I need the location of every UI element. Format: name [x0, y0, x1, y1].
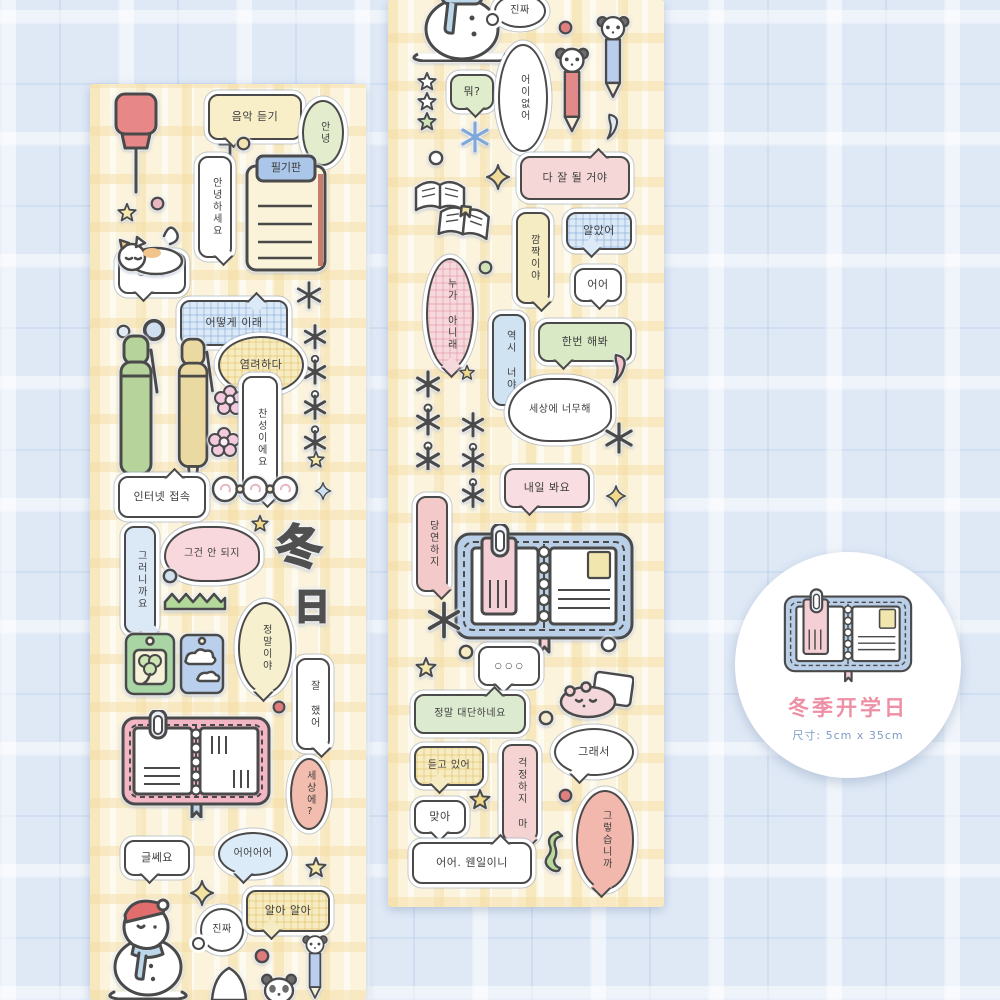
- comma-pink-icon: [610, 348, 630, 390]
- cat-icon: [116, 220, 186, 276]
- bubble-got-it: 알았어: [566, 212, 632, 250]
- bubble-hello: 안녕하세요: [198, 156, 232, 258]
- dot-blue-2: [162, 568, 178, 584]
- bubble-amazing: 정말 대단하네요: [414, 694, 526, 734]
- sparkle-blue-icon: [314, 482, 332, 500]
- snowman-icon: [96, 892, 200, 1000]
- dot-red-2: [254, 948, 270, 964]
- hanzi-day: 日: [290, 590, 334, 642]
- hamster-icon: [558, 668, 634, 720]
- bubble-dont-worry: 걱정하지 마: [502, 744, 538, 842]
- star-icon-7: [468, 788, 492, 812]
- asterisk-icon-1: [294, 280, 324, 310]
- dot-red-1: [272, 700, 286, 714]
- bubble-all-good: 다 잘 될 거야: [520, 156, 630, 200]
- star-icon-6: [414, 656, 438, 680]
- bubble-omg: 세상에?: [290, 758, 328, 830]
- thought-really: 진짜: [200, 908, 244, 952]
- bubble-listening: 듣고 있어: [414, 746, 484, 786]
- tag-clover-icon: [122, 630, 178, 698]
- bubble-i-know: 알아 알아: [246, 890, 330, 932]
- bubble-well-done: 잘 했어: [296, 658, 330, 750]
- dot-yellow: [236, 136, 251, 151]
- dot-red-4: [558, 788, 573, 803]
- dot-ring-2: [600, 636, 617, 653]
- panda-pencil-red-icon: [552, 46, 592, 134]
- dot-pink: [150, 196, 165, 211]
- bubble-ellipsis-2: ○ ○ ○: [478, 646, 540, 686]
- clipboard-label: 필기판: [242, 159, 330, 175]
- star-chain-icon: [414, 72, 440, 136]
- asterisk-icon-3: [424, 600, 464, 640]
- badge-size-label: 尺寸: 5cm x 35cm: [792, 727, 903, 743]
- bubble-internet: 인터넷 접속: [118, 476, 206, 518]
- dot-ring-1: [428, 150, 444, 166]
- bubble-no-way: 그건 안 되지: [164, 526, 260, 582]
- bubble-and-so: 그래서: [554, 728, 634, 776]
- planner-pink-icon: [120, 710, 272, 818]
- star-icon-3: [250, 514, 270, 534]
- dot-cream-1: [458, 644, 474, 660]
- bubble-who-says: 누가 아니래: [426, 258, 474, 370]
- badge-title: 冬季开学日: [788, 692, 908, 722]
- bubble-of-course: 당연하지: [416, 496, 448, 592]
- pushpin-red-icon: [106, 90, 166, 210]
- bubble-really: 정말이야: [238, 602, 292, 694]
- sticker-sheet-right: 진짜뭐?어이없어다 잘 될 거야깜짝이야알았어어어누가 아니래역시 너야한번 해…: [388, 0, 664, 907]
- product-badge: 冬季开学日 尺寸: 5cm x 35cm: [735, 552, 961, 778]
- bubble-what: 뭐?: [450, 74, 494, 110]
- flower-icon-2: [208, 426, 240, 458]
- sparkle-yellow-icon-2: [606, 484, 626, 508]
- star-icon-4: [304, 856, 328, 880]
- comma-blue-icon: [604, 112, 622, 142]
- beads-icon: [210, 474, 300, 504]
- star-icon-5: [458, 364, 476, 382]
- bubble-is-that-so: 그렇습니까: [576, 790, 634, 890]
- hanzi-winter: 冬: [268, 524, 330, 586]
- tag-cloud-icon: [178, 632, 226, 696]
- asterisk-blue-icon: [458, 120, 492, 154]
- panda-pencil-blue-icon-left: [296, 934, 334, 1000]
- bubble-too-much: 세상에 너무해: [508, 378, 612, 442]
- panda-face-icon: [258, 972, 300, 1000]
- dot-red-3: [558, 20, 573, 35]
- sticker-sheet-left: 음악 듣기안녕○ ○ ○안녕하세요필기판어떻게 이래염려하다찬성이에요인터넷 접…: [90, 84, 366, 1000]
- asterisk-chain-icon-3: [460, 408, 486, 514]
- bubble-right: 맞아: [414, 800, 466, 834]
- dot-cream-2: [538, 710, 554, 726]
- books-icon: [412, 176, 500, 242]
- bubble-uhh: 어어어어: [218, 832, 288, 876]
- bubble-speechless: 어이없어: [498, 44, 548, 152]
- planner-illustration: [782, 588, 914, 684]
- bubble-uh: 어어: [574, 268, 622, 302]
- zigzag-icon: [162, 590, 228, 612]
- planner-blue-icon: [452, 524, 636, 654]
- clipboard-sticker: 필기판: [242, 152, 330, 276]
- bubble-see-you: 내일 봐요: [504, 468, 590, 508]
- bubble-whats-up: 어어. 웬일이니: [412, 842, 532, 884]
- panda-pencil-blue-icon: [594, 12, 632, 102]
- bubble-music: 음악 듣기: [208, 94, 302, 140]
- product-photo: { "colors":{"background_plaid":"#dfe9f6"…: [0, 0, 1000, 1000]
- bubble-so: 그러니까요: [124, 526, 156, 634]
- egg-bubble-icon: [206, 966, 252, 1000]
- bubble-well: 글쎄요: [124, 840, 190, 876]
- asterisk-icon-2: [602, 420, 636, 456]
- dot-green: [478, 260, 493, 275]
- asterisk-chain-icon-2: [414, 370, 442, 470]
- bubble-startled: 깜짝이야: [516, 212, 550, 304]
- phone-doodle-icon: [542, 830, 568, 874]
- star-icon-2: [306, 450, 326, 470]
